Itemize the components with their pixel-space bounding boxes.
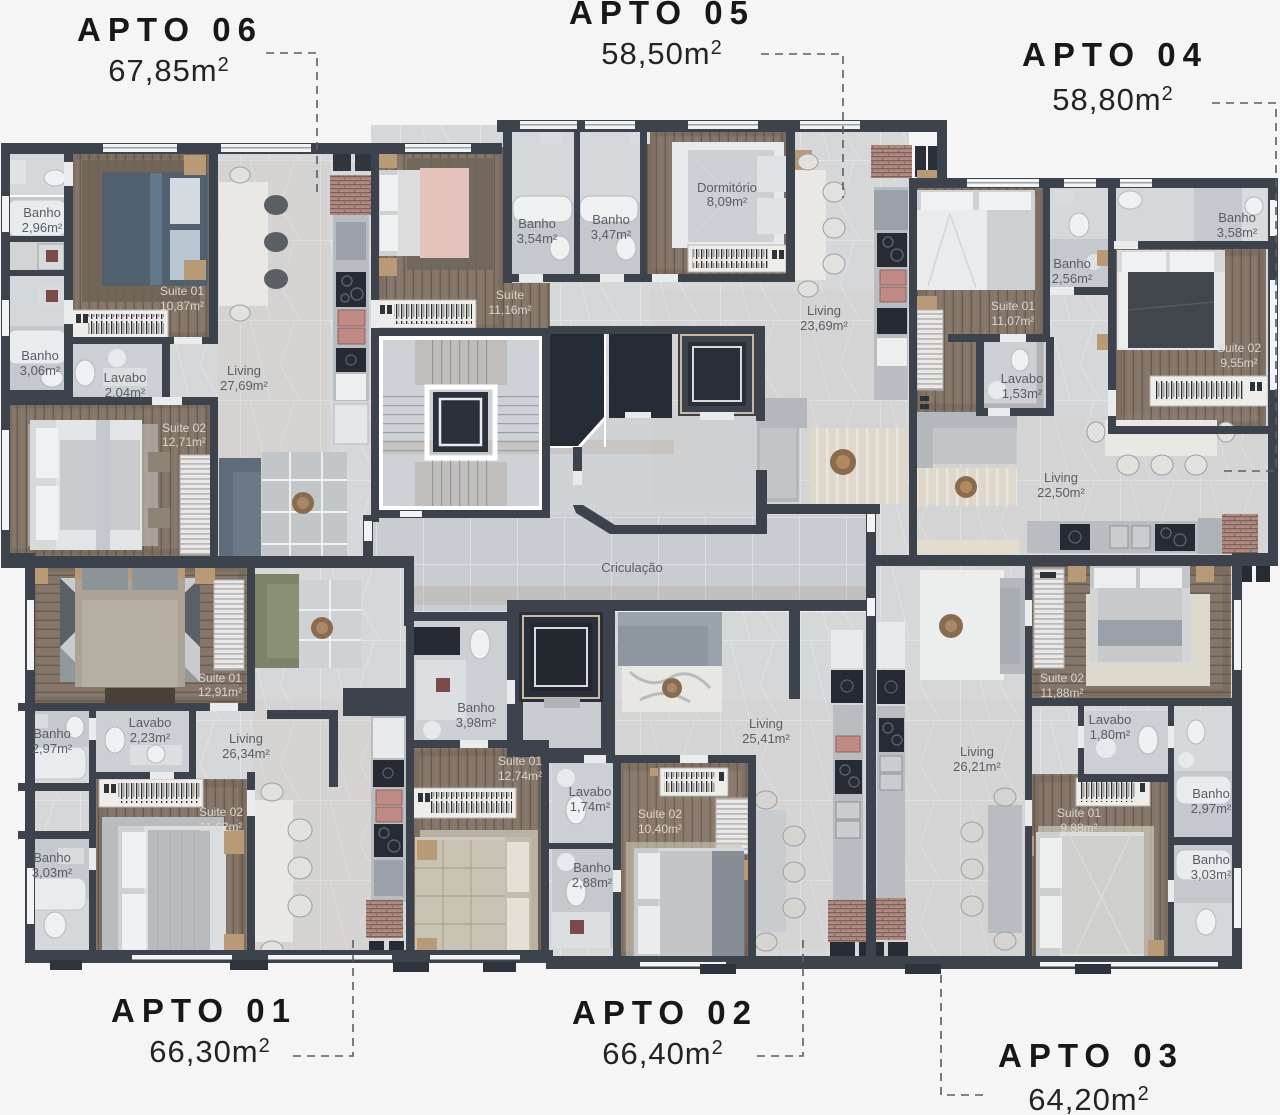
svg-text:23,69m²: 23,69m²	[800, 318, 848, 333]
svg-text:Living: Living	[807, 303, 841, 318]
svg-text:12,71m²: 12,71m²	[162, 435, 206, 449]
svg-text:11,88m²: 11,88m²	[1040, 686, 1083, 700]
svg-text:8,09m²: 8,09m²	[707, 194, 748, 209]
svg-text:Living: Living	[960, 744, 994, 759]
svg-text:Suite 02: Suite 02	[1217, 341, 1261, 355]
svg-text:APTO 04: APTO 04	[1022, 36, 1208, 73]
svg-text:Living: Living	[227, 363, 261, 378]
svg-text:Banho: Banho	[1218, 210, 1256, 225]
svg-text:3,54m²: 3,54m²	[517, 231, 558, 246]
svg-text:Suite 01: Suite 01	[160, 284, 204, 298]
svg-text:2,96m²: 2,96m²	[22, 220, 63, 235]
svg-text:10,87m²: 10,87m²	[160, 299, 204, 313]
svg-text:2,97m²: 2,97m²	[1191, 801, 1232, 816]
svg-text:66,30m2: 66,30m2	[149, 1034, 271, 1069]
svg-text:Suite 01: Suite 01	[1057, 806, 1101, 820]
svg-text:Suite 01: Suite 01	[991, 299, 1035, 313]
svg-text:Banho: Banho	[1192, 786, 1230, 801]
svg-text:Suite 02: Suite 02	[199, 805, 243, 819]
svg-text:12,91m²: 12,91m²	[198, 685, 242, 699]
svg-text:Banho: Banho	[33, 850, 71, 865]
svg-text:Banho: Banho	[23, 205, 61, 220]
svg-text:9,88m²: 9,88m²	[1060, 821, 1097, 835]
svg-text:Banho: Banho	[1192, 852, 1230, 867]
svg-text:58,80m2: 58,80m2	[1052, 82, 1174, 117]
svg-text:1,80m²: 1,80m²	[1090, 727, 1131, 742]
svg-text:Banho: Banho	[573, 860, 611, 875]
svg-text:3,47m²: 3,47m²	[591, 227, 632, 242]
svg-text:Living: Living	[229, 731, 263, 746]
svg-text:APTO 06: APTO 06	[77, 11, 263, 48]
svg-text:Dormitório: Dormitório	[697, 180, 757, 195]
svg-text:58,50m2: 58,50m2	[601, 36, 723, 71]
svg-text:Suite 02: Suite 02	[1040, 671, 1084, 685]
svg-text:26,34m²: 26,34m²	[222, 746, 270, 761]
svg-text:67,85m2: 67,85m2	[108, 53, 230, 88]
svg-text:Banho: Banho	[457, 700, 495, 715]
svg-text:27,69m²: 27,69m²	[220, 378, 268, 393]
svg-text:2,23m²: 2,23m²	[130, 730, 171, 745]
svg-text:66,40m2: 66,40m2	[602, 1036, 724, 1071]
svg-text:12,74m²: 12,74m²	[498, 769, 542, 783]
svg-text:25,41m²: 25,41m²	[742, 731, 790, 746]
svg-text:9,55m²: 9,55m²	[1220, 356, 1257, 370]
svg-text:Living: Living	[749, 716, 783, 731]
svg-text:Living: Living	[1044, 470, 1078, 485]
svg-text:Lavabo: Lavabo	[1001, 371, 1044, 386]
svg-text:Suite 02: Suite 02	[162, 421, 206, 435]
svg-text:1,74m²: 1,74m²	[570, 799, 611, 814]
svg-text:11,62m²: 11,62m²	[199, 820, 242, 834]
svg-text:Banho: Banho	[33, 726, 71, 741]
svg-text:22,50m²: 22,50m²	[1037, 485, 1085, 500]
svg-text:Suite 01: Suite 01	[498, 754, 542, 768]
svg-text:Banho: Banho	[592, 212, 630, 227]
svg-text:Suite 02: Suite 02	[638, 807, 682, 821]
svg-text:11,16m²: 11,16m²	[488, 303, 531, 317]
svg-text:2,04m²: 2,04m²	[105, 385, 146, 400]
svg-text:2,56m²: 2,56m²	[1052, 271, 1093, 286]
svg-text:2,97m²: 2,97m²	[32, 741, 73, 756]
svg-text:Lavabo: Lavabo	[1089, 712, 1132, 727]
svg-text:11,07m²: 11,07m²	[991, 314, 1034, 328]
svg-text:Lavabo: Lavabo	[129, 715, 172, 730]
svg-text:64,20m2: 64,20m2	[1028, 1082, 1150, 1115]
svg-text:Banho: Banho	[518, 216, 556, 231]
svg-text:26,21m²: 26,21m²	[953, 759, 1001, 774]
svg-text:3,03m²: 3,03m²	[1191, 867, 1232, 882]
svg-text:Suíte: Suíte	[496, 288, 524, 302]
svg-text:3,06m²: 3,06m²	[20, 363, 61, 378]
svg-text:APTO 02: APTO 02	[572, 994, 758, 1031]
svg-text:3,03m²: 3,03m²	[32, 865, 73, 880]
svg-text:2,88m²: 2,88m²	[572, 875, 613, 890]
svg-text:APTO 03: APTO 03	[998, 1037, 1184, 1074]
svg-text:APTO 05: APTO 05	[569, 0, 755, 31]
svg-text:1,53m²: 1,53m²	[1002, 386, 1043, 401]
svg-text:Lavabo: Lavabo	[104, 370, 147, 385]
svg-text:3,98m²: 3,98m²	[456, 715, 497, 730]
svg-text:Criculação: Criculação	[601, 560, 662, 575]
svg-text:Banho: Banho	[21, 348, 59, 363]
svg-text:3,58m²: 3,58m²	[1217, 225, 1258, 240]
svg-text:Lavabo: Lavabo	[569, 784, 612, 799]
svg-text:Suite 01: Suite 01	[198, 671, 242, 685]
svg-text:APTO 01: APTO 01	[111, 992, 297, 1029]
svg-text:10,40m²: 10,40m²	[638, 822, 682, 836]
svg-text:Banho: Banho	[1053, 256, 1091, 271]
